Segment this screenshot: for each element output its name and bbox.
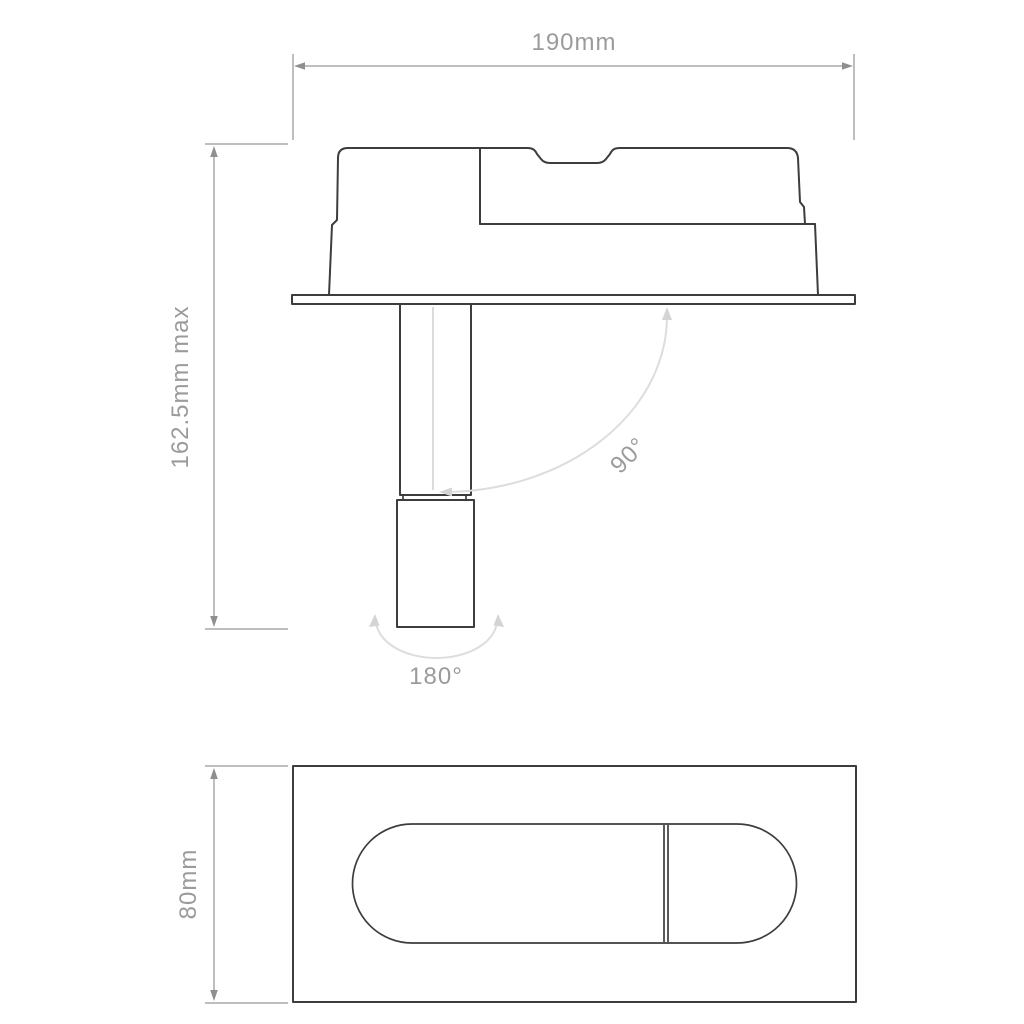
arrow-right-icon	[842, 62, 853, 70]
tilt-arc: 90°	[439, 307, 672, 497]
front-view: 190mm 162.5mm max	[167, 29, 855, 690]
arc-arrow-up-left-icon	[369, 614, 380, 627]
width-dimension-label: 190mm	[531, 29, 616, 56]
slot-outline	[353, 824, 797, 943]
spot-head	[397, 500, 474, 627]
stem	[400, 305, 471, 500]
rotation-arc: 180°	[369, 614, 504, 690]
bottom-view: 80mm	[175, 766, 856, 1003]
arrow-up-icon	[210, 146, 218, 157]
stem-outline	[400, 305, 471, 495]
fixture-housing	[329, 148, 818, 295]
width-dimension: 190mm	[293, 29, 854, 140]
technical-drawing: 190mm 162.5mm max	[0, 0, 1024, 1024]
housing-silhouette	[329, 148, 818, 295]
arc-arrow-up-right-icon	[494, 614, 505, 627]
slot-divider	[664, 825, 668, 942]
arrow-down-icon	[210, 616, 218, 627]
arrow-down-icon	[210, 990, 218, 1001]
rotation-arc-curve	[376, 620, 497, 658]
height-dimension-label: 162.5mm max	[167, 305, 194, 468]
rotation-angle-label: 180°	[409, 663, 463, 690]
arrow-up-icon	[210, 768, 218, 779]
ceiling-plate	[292, 295, 855, 304]
faceplate-outline	[293, 766, 856, 1002]
tilt-angle-label: 90°	[605, 432, 652, 479]
arc-arrow-up-icon	[662, 307, 672, 320]
height-dimension: 162.5mm max	[167, 144, 288, 629]
arrow-left-icon	[294, 62, 305, 70]
depth-dimension: 80mm	[175, 766, 288, 1003]
depth-dimension-label: 80mm	[175, 849, 202, 920]
